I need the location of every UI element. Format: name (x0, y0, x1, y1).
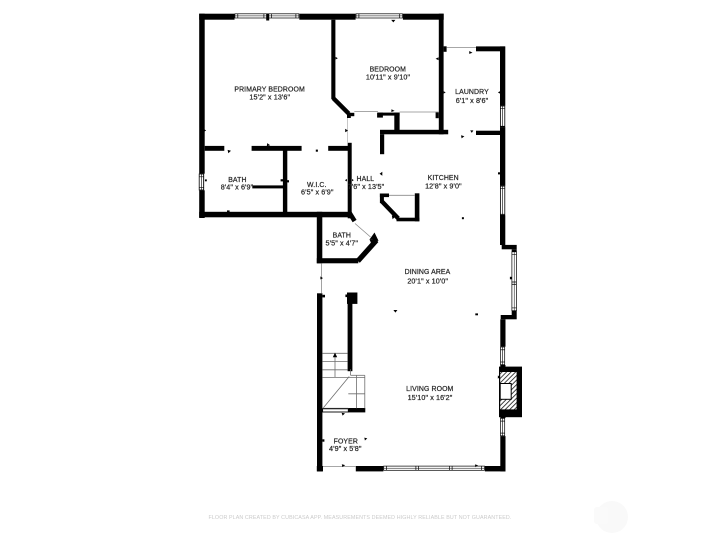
svg-text:8'4" x 6'9": 8'4" x 6'9" (221, 183, 254, 192)
svg-text:10'11" x 9'10": 10'11" x 9'10" (366, 73, 411, 82)
svg-text:FLOOR PLAN CREATED BY CUBICASA: FLOOR PLAN CREATED BY CUBICASA APP. MEAS… (209, 515, 512, 521)
svg-text:15'10" x 16'2": 15'10" x 16'2" (408, 393, 453, 402)
svg-text:7'6" x 13'5": 7'6" x 13'5" (348, 182, 385, 191)
svg-text:6'1" x 8'6": 6'1" x 8'6" (456, 96, 489, 105)
svg-text:12'8" x 9'0": 12'8" x 9'0" (425, 182, 462, 191)
svg-text:5'5" x 4'7": 5'5" x 4'7" (326, 238, 359, 247)
svg-text:20'1" x 10'0": 20'1" x 10'0" (407, 276, 448, 285)
svg-text:6'5" x 6'9": 6'5" x 6'9" (301, 188, 334, 197)
svg-text:15'2" x 13'6": 15'2" x 13'6" (249, 92, 290, 101)
svg-text:4'9" x 5'8": 4'9" x 5'8" (329, 444, 362, 453)
svg-text:DINING AREA: DINING AREA (405, 269, 451, 276)
